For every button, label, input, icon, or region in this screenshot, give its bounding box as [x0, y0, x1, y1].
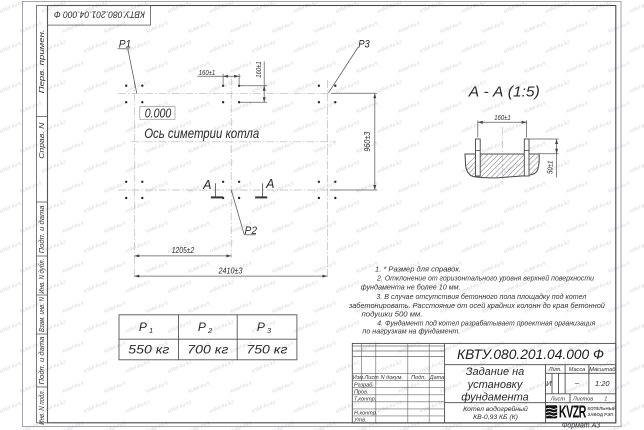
svg-text:0.000: 0.000 — [145, 106, 172, 121]
svg-text:фундамента: фундамента — [461, 392, 529, 404]
svg-text:фундамента не более 10 мм.: фундамента не более 10 мм. — [361, 282, 461, 291]
svg-text:KVZR: KVZR — [559, 403, 587, 422]
svg-text:Подп. и дата: Подп. и дата — [38, 336, 46, 384]
svg-text:Котел водогрейный: Котел водогрейный — [463, 405, 528, 413]
svg-text:И: И — [546, 379, 552, 388]
svg-text:Ось симетрии котла: Ось симетрии котла — [144, 125, 259, 141]
svg-text:50±1: 50±1 — [546, 161, 555, 175]
svg-text:2. Отклонение от горизонтально: 2. Отклонение от горизонтального уровня … — [376, 273, 594, 282]
svg-text:по нагрузкам на фундамент.: по нагрузкам на фундамент. — [362, 326, 460, 335]
svg-text:160±1: 160±1 — [494, 113, 511, 122]
svg-text:Масштаб: Масштаб — [589, 367, 616, 373]
svg-text:160±1: 160±1 — [199, 68, 216, 77]
svg-text:Инв. N подл.: Инв. N подл. — [38, 390, 46, 425]
svg-text:ЗАВОД РЭП: ЗАВОД РЭП — [588, 412, 614, 417]
svg-text:Формат А3: Формат А3 — [562, 423, 600, 430]
svg-text:700 кг: 700 кг — [187, 344, 228, 356]
svg-text:Лит.: Лит. — [548, 367, 562, 373]
svg-text:2410±3: 2410±3 — [218, 265, 243, 275]
svg-text:КОТЕЛЬНЫЙ: КОТЕЛЬНЫЙ — [588, 406, 617, 411]
svg-text:А - А (1:5): А - А (1:5) — [468, 84, 540, 101]
svg-text:3. В случае отсутствия бетонно: 3. В случае отсутствия бетонного пола пл… — [376, 292, 586, 301]
svg-text:КВТУ.080.201.04.000 Ф: КВТУ.080.201.04.000 Ф — [457, 347, 604, 362]
svg-text:1: 1 — [604, 397, 607, 403]
svg-text:А: А — [265, 177, 274, 191]
svg-text:Задание на: Задание на — [466, 366, 525, 378]
svg-text:1:20: 1:20 — [595, 379, 610, 388]
svg-text:550 кг: 550 кг — [128, 344, 169, 356]
svg-text:1205±2: 1205±2 — [172, 245, 195, 255]
svg-text:960±3: 960±3 — [362, 131, 372, 151]
svg-text:КВ-0,93 КБ (К): КВ-0,93 КБ (К) — [473, 414, 518, 421]
svg-text:Пров.: Пров. — [354, 389, 369, 395]
svg-text:Разраб.: Разраб. — [354, 382, 374, 388]
svg-text:N докум.: N докум. — [381, 375, 403, 381]
svg-text:Справ. N: Справ. N — [39, 122, 46, 159]
svg-text:установку: установку — [467, 379, 524, 391]
svg-text:Инв. N дубл.: Инв. N дубл. — [38, 259, 46, 294]
svg-text:Подп. и дата: Подп. и дата — [38, 205, 46, 253]
svg-text:Перв. примен.: Перв. примен. — [39, 29, 46, 93]
svg-text:Т.контр.: Т.контр. — [354, 397, 376, 403]
svg-text:Дата: Дата — [429, 375, 445, 381]
svg-text:А: А — [202, 178, 211, 192]
svg-text:160±1: 160±1 — [254, 61, 263, 78]
svg-text:–: – — [574, 378, 580, 387]
svg-text:750 кг: 750 кг — [246, 344, 287, 356]
svg-text:Р3: Р3 — [358, 38, 370, 50]
svg-text:Изм.Лист: Изм.Лист — [353, 375, 379, 381]
svg-text:Масса: Масса — [569, 367, 586, 373]
svg-text:Взам. инв. N: Взам. инв. N — [39, 296, 46, 332]
svg-text:Утв.: Утв. — [353, 418, 367, 424]
svg-text:Н.контр.: Н.контр. — [354, 411, 377, 417]
svg-text:1. * Размер для справок.: 1. * Размер для справок. — [375, 264, 461, 273]
svg-text:Подп.: Подп. — [411, 375, 426, 381]
svg-text:КВТУ.080.201.04.000 Ф: КВТУ.080.201.04.000 Ф — [54, 10, 145, 21]
